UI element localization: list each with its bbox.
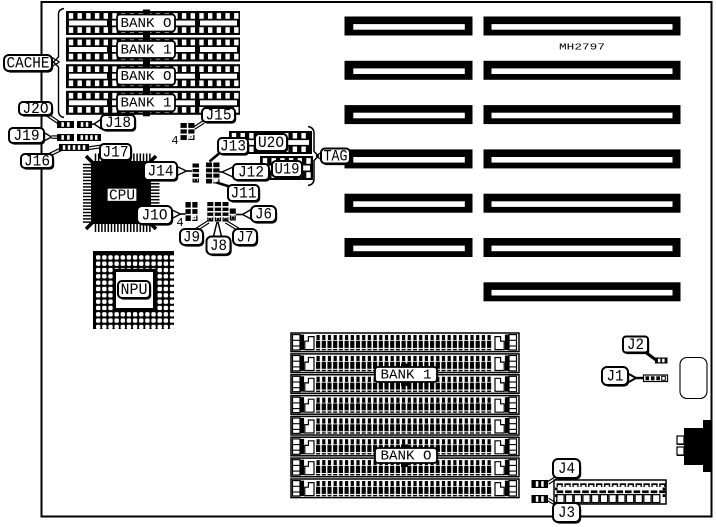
svg-text:BANK O: BANK O: [121, 17, 172, 32]
svg-text:J2O: J2O: [23, 100, 49, 118]
svg-text:U2O: U2O: [258, 134, 284, 152]
svg-text:J4: J4: [558, 460, 575, 478]
svg-text:J14: J14: [148, 163, 174, 181]
svg-text:BANK O: BANK O: [121, 70, 172, 85]
svg-text:J1: J1: [607, 368, 624, 386]
svg-text:BANK 1: BANK 1: [121, 43, 172, 58]
svg-text:BANK O: BANK O: [381, 449, 432, 464]
svg-text:J17: J17: [103, 144, 129, 162]
svg-text:J8: J8: [210, 237, 227, 255]
svg-text:TAG: TAG: [324, 148, 348, 166]
svg-text:J3: J3: [558, 504, 575, 522]
svg-text:J6: J6: [255, 206, 272, 224]
svg-text:J11: J11: [231, 185, 257, 203]
svg-text:MH2797: MH2797: [559, 43, 605, 53]
svg-text:U19: U19: [275, 161, 300, 179]
svg-text:4: 4: [171, 134, 178, 148]
svg-text:BANK 1: BANK 1: [121, 97, 172, 112]
svg-text:J9: J9: [183, 229, 200, 247]
svg-text:J16: J16: [24, 153, 50, 171]
svg-text:CPU: CPU: [109, 188, 135, 205]
svg-text:J19: J19: [14, 127, 40, 145]
svg-text:J1O: J1O: [142, 207, 168, 225]
svg-text:J15: J15: [206, 107, 232, 125]
svg-text:J18: J18: [105, 114, 131, 132]
svg-text:J2: J2: [627, 336, 644, 354]
svg-text:J7: J7: [237, 229, 254, 247]
svg-text:J13: J13: [220, 138, 246, 156]
svg-text:BANK 1: BANK 1: [381, 368, 432, 383]
svg-text:CACHE: CACHE: [7, 55, 50, 73]
svg-text:J12: J12: [238, 164, 264, 182]
svg-text:NPU: NPU: [121, 281, 148, 299]
